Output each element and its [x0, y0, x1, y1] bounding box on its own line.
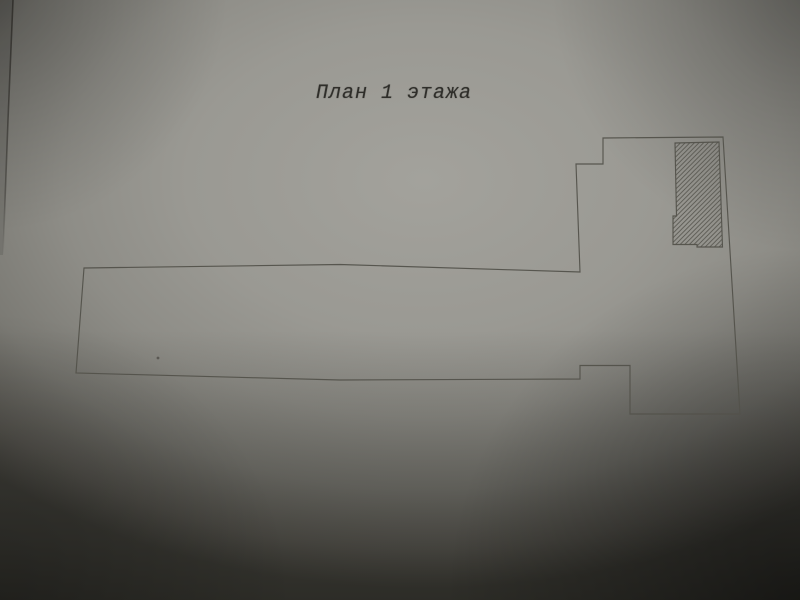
plan-title: План 1 этажа [316, 82, 472, 105]
building-outline [76, 137, 740, 414]
paper-speck [157, 357, 160, 360]
photo-floor-plan-page: План 1 этажа [0, 0, 800, 600]
hatched-area [673, 142, 723, 247]
